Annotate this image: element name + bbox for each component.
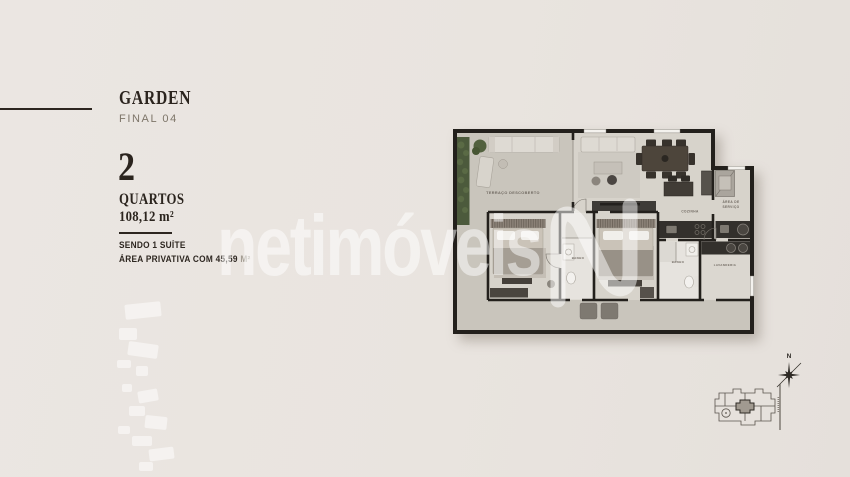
- highlighted-unit: [736, 400, 754, 413]
- suite-note: SENDO 1 SUÍTE: [119, 240, 186, 250]
- watermark-fragment: [144, 415, 167, 430]
- compass-north-label: N: [787, 353, 792, 360]
- unit-title: GARDEN: [119, 87, 191, 110]
- title-rule: [0, 108, 92, 110]
- street-label-marks: [778, 397, 780, 412]
- watermark-fragment: [136, 366, 148, 376]
- watermark-fragment: [119, 328, 137, 340]
- watermark-fragment: [137, 388, 159, 403]
- watermark-fragment: [139, 462, 153, 471]
- brochure-page: GARDEN FINAL 04 2 QUARTOS 108,12 m² SEND…: [0, 0, 850, 477]
- watermark-fragment: [148, 447, 174, 462]
- service-area-label-2: SERVIÇO: [722, 205, 739, 209]
- watermark-fragment: [129, 406, 145, 416]
- suite-bathroom-label: BANHO: [572, 256, 585, 260]
- watermark-fragment: [118, 426, 130, 434]
- private-area-note: ÁREA PRIVATIVA COM 45,59 M²: [119, 254, 251, 264]
- floor-plan: TERRAÇO DESCOBERTO COZINHA ÁREA DE SERVI…: [448, 118, 768, 346]
- panel-divider: [119, 232, 172, 234]
- bathroom2-label: BANHO: [672, 260, 685, 264]
- watermark-fragment: [117, 360, 131, 368]
- unit-area: 108,12 m²: [119, 209, 174, 226]
- watermark-fragment: [132, 436, 152, 446]
- watermark-fragment: [127, 341, 159, 359]
- bedrooms-count: 2: [118, 147, 135, 187]
- building-key-plan: [711, 383, 783, 431]
- service-area-label-1: ÁREA DE: [722, 199, 739, 204]
- unit-subtitle: FINAL 04: [119, 113, 178, 125]
- private-area-text: ÁREA PRIVATIVA COM 45,59: [119, 254, 238, 264]
- terrace-label: TERRAÇO DESCOBERTO: [486, 191, 540, 195]
- watermark-fragment: [122, 384, 132, 392]
- watermark-fragment: [124, 301, 161, 320]
- kitchen-label: COZINHA: [681, 210, 699, 214]
- laundry-label: LAVANDERIA: [714, 263, 737, 267]
- private-area-unit: M²: [240, 254, 250, 264]
- bedrooms-label: QUARTOS: [119, 191, 184, 209]
